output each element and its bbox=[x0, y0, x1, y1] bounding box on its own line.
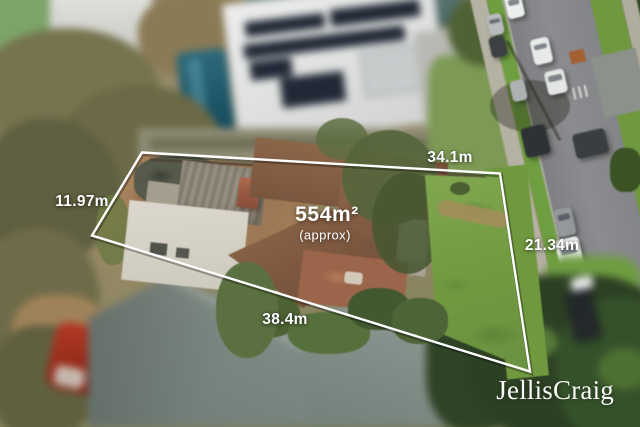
measurement-left-label: 11.97m bbox=[55, 193, 109, 211]
area-label: 554m² bbox=[295, 203, 359, 227]
agency-logo: JellisCraig bbox=[496, 375, 614, 406]
boundary-shadow bbox=[93, 154, 531, 373]
area-approx-label: (approx) bbox=[299, 228, 351, 243]
boundary-line bbox=[92, 153, 530, 372]
aerial-property-photo: 34.1m 11.97m 21.34m 38.4m 554m² (approx)… bbox=[0, 0, 640, 427]
measurement-bottom-label: 38.4m bbox=[262, 311, 307, 329]
measurement-top-label: 34.1m bbox=[427, 149, 472, 167]
measurement-right-label: 21.34m bbox=[525, 237, 579, 255]
